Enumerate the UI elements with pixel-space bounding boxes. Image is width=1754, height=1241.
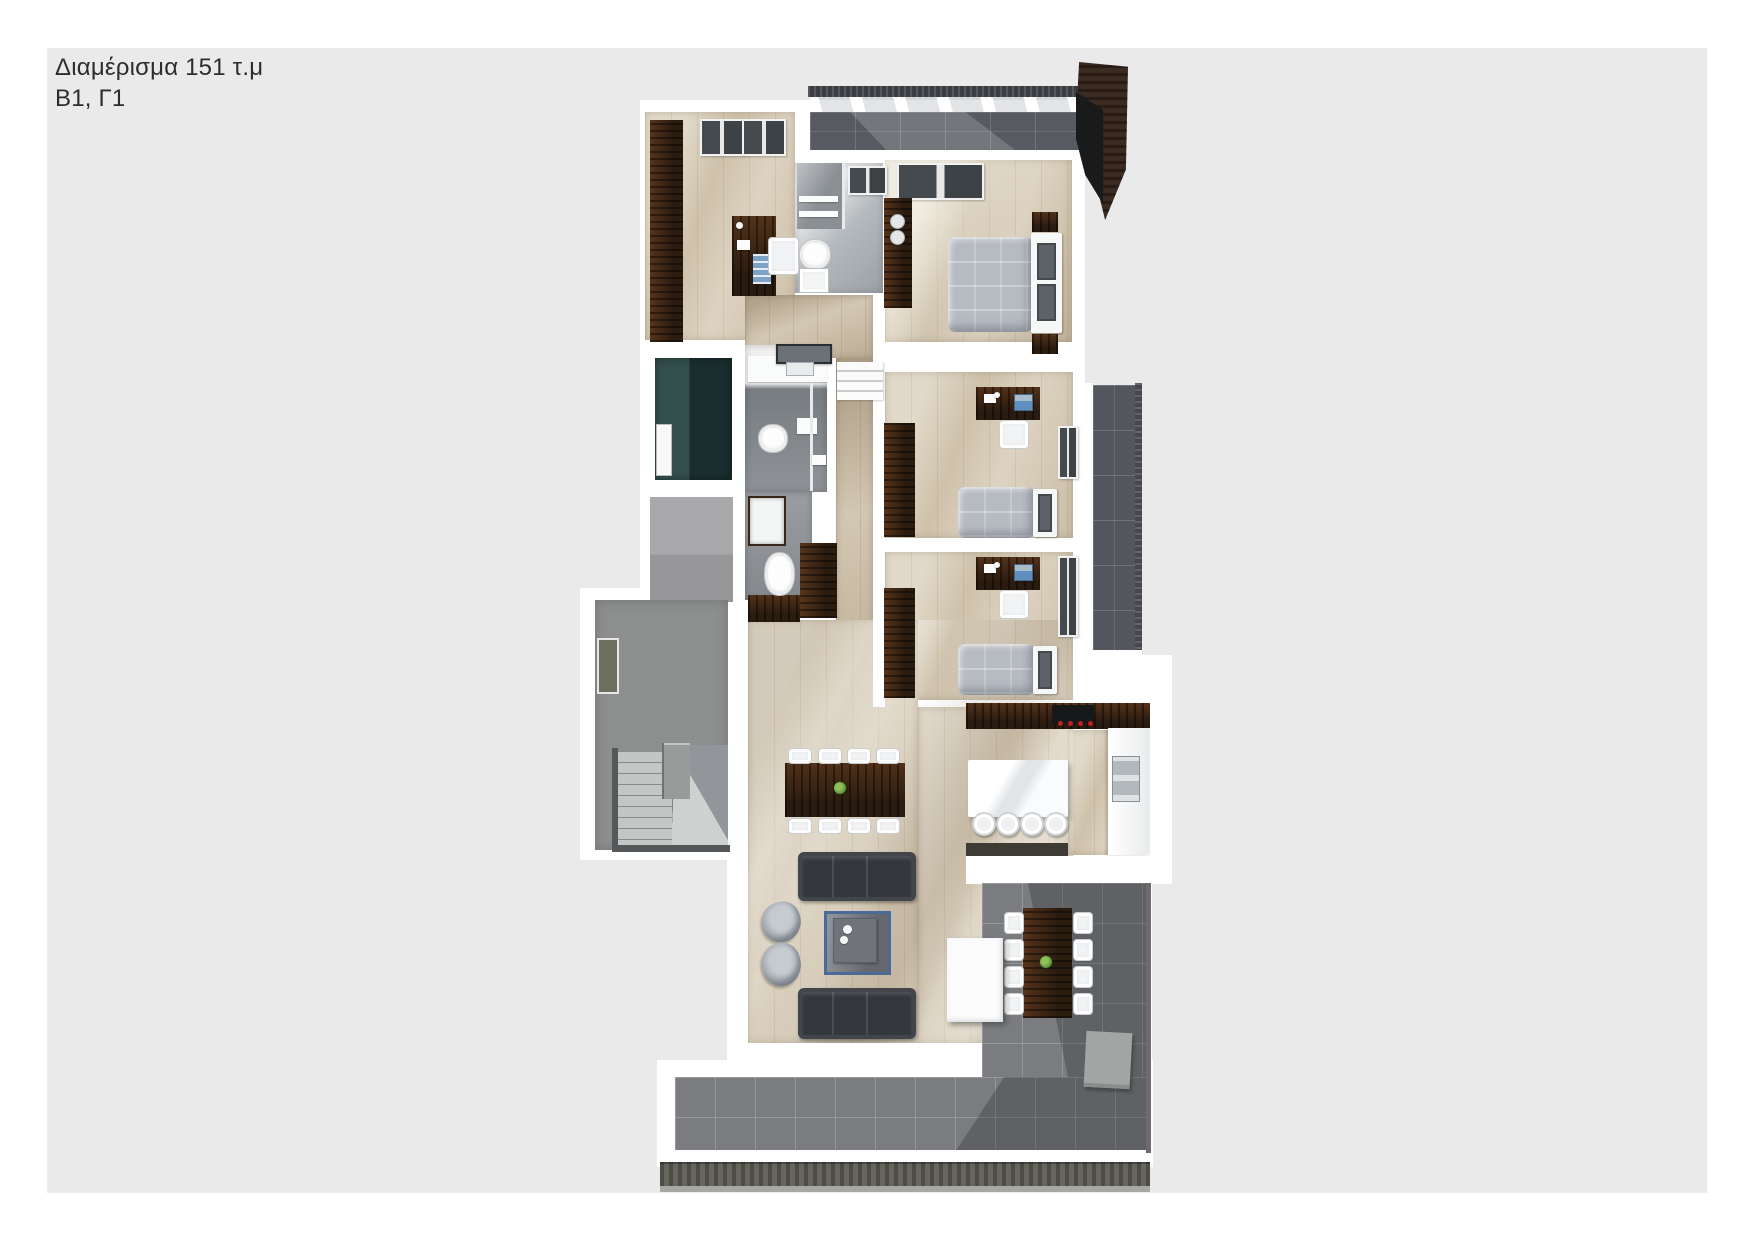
page-subtitle: Β1, Γ1 (55, 83, 263, 114)
bedroom3-headboard-panel (1038, 651, 1052, 689)
terrace-tiles-bottom (675, 1077, 1148, 1153)
stairwell-skylight (597, 638, 619, 694)
dining-chair-top-1 (788, 748, 812, 764)
stair-frame-bottom (612, 845, 730, 852)
outdoor-counter-block (947, 938, 1003, 1022)
side-balcony-tiles (1093, 385, 1135, 651)
dining-chair-bottom-1 (788, 818, 812, 834)
coffee-table-decor-1 (843, 925, 852, 934)
master-dresser-bowl-1 (890, 214, 905, 229)
cooktop-knob-1 (1058, 721, 1063, 726)
title-block: Διαμέρισμα 151 τ.μ Β1, Γ1 (55, 52, 263, 114)
bedroom3-balcony-window (1058, 556, 1078, 637)
master-nightstand-1 (1032, 212, 1058, 232)
floor-plan-page: Διαμέρισμα 151 τ.μ Β1, Γ1 (0, 0, 1754, 1241)
office-wardrobe (650, 120, 683, 342)
top-balcony-outer-edge (808, 86, 1084, 97)
master-headboard-panel-2 (1037, 284, 1056, 321)
wc-sink (748, 496, 786, 546)
kitchen-sink (1112, 756, 1140, 802)
top-balcony-tiles (810, 112, 1082, 150)
hall-closet-shelves (837, 362, 883, 400)
cooktop-knob-4 (1088, 721, 1093, 726)
outdoor-chair-right-3 (1073, 966, 1093, 988)
dining-chair-bottom-3 (847, 818, 871, 834)
ensuite-shelf-1 (799, 196, 838, 202)
top-balcony-glass-railing (810, 97, 1082, 112)
outdoor-chair-right-2 (1073, 939, 1093, 961)
master-balcony-door (897, 163, 984, 200)
side-balcony-outer-edge (1135, 383, 1142, 653)
lower-roof-patch (650, 497, 733, 602)
bedroom2-wardrobe (884, 423, 915, 537)
bathroom-bench (797, 418, 817, 434)
outdoor-chair-left-3 (1004, 966, 1024, 988)
dining-table-plant (834, 782, 846, 794)
bedroom2-balcony-window (1058, 426, 1078, 479)
outdoor-chair-left-1 (1004, 912, 1024, 934)
sofa-top (798, 852, 916, 901)
bathroom-shower-glass (810, 383, 813, 491)
outdoor-chair-right-1 (1073, 912, 1093, 934)
office-chair (768, 237, 799, 275)
bathroom-shelf (812, 455, 826, 465)
kitchen-island (968, 760, 1068, 817)
stair-newel-pillar (664, 743, 690, 799)
dining-chair-top-2 (818, 748, 842, 764)
dining-chair-bottom-4 (876, 818, 900, 834)
outdoor-chair-left-2 (1004, 939, 1024, 961)
coffee-table-decor-2 (840, 936, 848, 944)
bedroom2-laptop (1014, 394, 1033, 411)
outdoor-chair-left-4 (1004, 993, 1024, 1015)
terrace-right-edge (1146, 883, 1151, 1153)
cooktop-knob-2 (1068, 721, 1073, 726)
hall-cabinet-low (748, 595, 800, 622)
terrace-front-edge-highlight (660, 1186, 1150, 1192)
page-title: Διαμέρισμα 151 τ.μ (55, 52, 263, 83)
ensuite-sink (799, 268, 829, 293)
terrace-bench (1084, 1031, 1133, 1089)
bar-stool-3 (1020, 812, 1044, 836)
ensuite-shower-glass (842, 163, 845, 229)
bedroom2-lamp (994, 392, 1000, 398)
elevator-door (656, 424, 672, 476)
master-nightstand-2 (1032, 334, 1058, 354)
bedroom3-bed (958, 644, 1035, 695)
bedroom3-lamp (994, 562, 1000, 568)
sofa-bottom (798, 988, 916, 1039)
side-balcony-end-wall (1085, 650, 1142, 662)
bathroom-toilet (758, 424, 788, 453)
outdoor-chair-right-4 (1073, 993, 1093, 1015)
master-double-bed (948, 237, 1033, 332)
bar-stool-1 (972, 812, 996, 836)
bar-stool-4 (1044, 812, 1068, 836)
bedroom3-chair (999, 590, 1029, 619)
dining-chair-top-3 (847, 748, 871, 764)
cooktop-knob-3 (1078, 721, 1083, 726)
bathroom-mirror (776, 344, 832, 364)
kitchen-terrace-wall (966, 856, 1172, 884)
bathroom-sink (786, 362, 814, 376)
bedroom3-wardrobe (884, 588, 915, 698)
bedroom2-chair (999, 420, 1029, 449)
master-headboard-panel-1 (1037, 243, 1056, 280)
bar-stool-2 (996, 812, 1020, 836)
office-window-right (742, 119, 786, 156)
ensuite-window (848, 166, 887, 195)
office-desk-lamp (736, 222, 743, 229)
wc-toilet (764, 552, 795, 596)
master-dresser-bowl-2 (890, 230, 905, 245)
bedroom3-laptop (1014, 564, 1033, 581)
bedroom2-headboard-panel (1038, 494, 1052, 532)
outdoor-table-plant (1040, 956, 1052, 968)
terrace-front-edge (660, 1162, 1150, 1186)
dining-chair-bottom-2 (818, 818, 842, 834)
ensuite-shelf-2 (799, 211, 838, 217)
office-window-left (700, 119, 744, 156)
dining-chair-top-4 (876, 748, 900, 764)
stair-frame-left (612, 748, 618, 852)
bedroom2-bed (958, 487, 1035, 538)
side-balcony-railing (1085, 383, 1093, 653)
ensuite-toilet (799, 239, 831, 270)
hall-cabinet-tall (800, 543, 837, 618)
office-paper (737, 240, 750, 250)
